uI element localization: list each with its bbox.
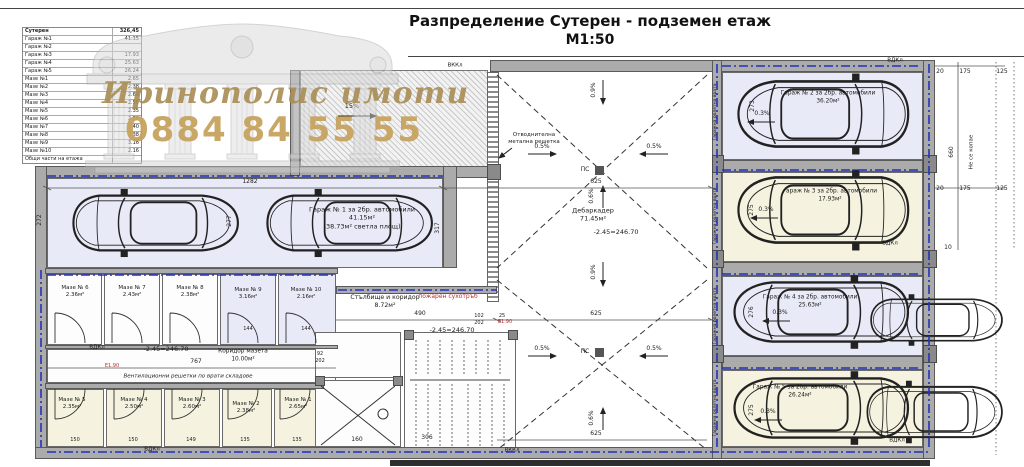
dim: 202 xyxy=(474,320,484,327)
car-top-view-icon xyxy=(871,294,1002,346)
slope-label: 0.3% xyxy=(758,206,773,214)
garage2-label: Гараж № 2 за 2бр. автомобили36.20м² xyxy=(781,90,876,105)
slope-label: 0.9% xyxy=(591,264,597,279)
roller-door-label: Гаражна ролетна врата xyxy=(714,380,719,437)
dim: 625 xyxy=(590,310,601,318)
dim: 20 xyxy=(936,68,944,76)
ps-label: ПС xyxy=(581,166,590,174)
slope-label: 0.9% xyxy=(591,82,597,97)
dim: 175 xyxy=(959,68,970,76)
maze1-label: Мазе № 12.65м² xyxy=(284,397,311,411)
dim: 125 xyxy=(996,185,1007,193)
slope-label: 0.3% xyxy=(760,408,775,416)
slope-label: 0.5% xyxy=(646,345,661,353)
level-mark: -2.45=246.70 xyxy=(429,326,474,334)
slope-label: 0.6% xyxy=(589,410,595,425)
dim: 135 xyxy=(292,437,302,444)
maze9-label: Мазе № 93.16м² xyxy=(234,287,261,301)
vkkl-label: ВККл xyxy=(447,62,462,69)
slope-label: 0.5% xyxy=(534,345,549,353)
dim: 306 xyxy=(421,434,432,442)
dim: 20 xyxy=(936,185,944,193)
dim: 490 xyxy=(414,310,425,318)
maze4-label: Мазе № 42.50м² xyxy=(120,397,147,411)
dim: 149 xyxy=(186,437,196,444)
bottom-section-bar xyxy=(390,460,930,466)
vent-note: Вентилационни решетки по врати складове xyxy=(123,373,252,380)
stair-steps xyxy=(416,340,504,448)
dim: 144 xyxy=(243,326,253,333)
dim: 92 xyxy=(317,351,323,358)
maze7-label: Мазе № 72.43м² xyxy=(118,285,145,299)
maze5-label: Мазе № 52.35м² xyxy=(58,397,85,411)
dim: 150 xyxy=(70,437,80,444)
level-mark: -2.45=246.70 xyxy=(143,345,188,353)
corridor-label: Коридор мазета10.00м² xyxy=(218,348,268,363)
dim: 102 xyxy=(474,313,484,320)
vdkl-label: ВДКл xyxy=(144,446,160,453)
phone-watermark: 0884 84 55 55 xyxy=(125,110,423,150)
dim: 317 xyxy=(435,222,441,233)
dim: 277 xyxy=(227,215,233,226)
roller-door-label: Гаражна ролетна врата xyxy=(714,188,719,245)
maze2-label: Мазе № 22.38м² xyxy=(232,401,259,415)
dim: 125 xyxy=(996,68,1007,76)
vkkl-label: ВККл xyxy=(504,447,519,454)
dim: 25 xyxy=(499,313,505,320)
vdkl-label: ВДКл xyxy=(89,344,105,351)
dim: 135 xyxy=(240,437,250,444)
e-mark: Е1.90 xyxy=(105,363,119,370)
slope-label: 0.5% xyxy=(534,143,549,151)
dim: 273 xyxy=(750,100,756,111)
vdkl-label: ВДКл xyxy=(887,57,903,64)
slope-label: 0.3% xyxy=(754,110,769,118)
dim: 625 xyxy=(590,430,601,438)
dim: 202 xyxy=(315,358,325,365)
vdkl-label: ВДКл xyxy=(889,437,905,444)
dim: 150 xyxy=(128,437,138,444)
ps-shaft-square xyxy=(595,348,604,357)
slope-label: 0.5% xyxy=(646,143,661,151)
drawing-scale: М1:50 xyxy=(408,32,772,48)
ps-label: ПС xyxy=(581,348,590,356)
garage3-label: гараж № 3 за 2бр. автомобили17.93м² xyxy=(783,188,877,203)
slope-label: 0.3% xyxy=(772,309,787,317)
garage5-label: Гараж № 5 за 2бр. автомобили26.24м² xyxy=(753,384,848,399)
maze6-label: Мазе № 62.36м² xyxy=(61,285,88,299)
dim: 1282 xyxy=(242,178,257,186)
dim: 275 xyxy=(749,404,755,415)
dim: 660 xyxy=(949,146,955,157)
dim: 767 xyxy=(190,358,201,366)
dim: 10 xyxy=(944,244,952,252)
garage1-label: Гараж № 1 за 2бр. автомобили41.15м²(38.7… xyxy=(309,205,415,230)
fire-pipe-note: пожарен сухотръб xyxy=(418,293,477,301)
agency-watermark: Иринополис имоти xyxy=(102,76,469,111)
dim: 272 xyxy=(37,214,43,225)
maze3-label: Мазе № 32.60м² xyxy=(178,397,205,411)
dim: 144 xyxy=(301,326,311,333)
dim: 160 xyxy=(351,436,362,444)
e-mark: Е1.90 xyxy=(498,319,512,326)
vdkl-label: ВДКл xyxy=(882,240,898,247)
stairs-label: Стълбище и коридор8.72м² xyxy=(350,294,419,310)
ps-shaft-square xyxy=(595,166,604,175)
boundary-dotted-lines xyxy=(996,62,1014,455)
dim: 175 xyxy=(959,185,970,193)
slope-label: 0.6% xyxy=(589,188,595,203)
dim: 276 xyxy=(749,306,755,317)
maze8-label: Мазе № 82.38м² xyxy=(176,285,203,299)
roller-door-label: Гаражна ролетна врата xyxy=(714,84,719,141)
maze10-label: Мазе № 102.16м² xyxy=(291,287,322,301)
car-top-view-icon xyxy=(867,381,1002,444)
dim: 625 xyxy=(590,178,601,186)
floor-plan-sheet: Разпределение Сутерен - подземен етаж М1… xyxy=(0,0,1024,467)
no-dig-label: Не се копае xyxy=(969,135,975,169)
car-top-view-icon xyxy=(73,189,237,257)
debarkader-label: Дебаркадер71.45м² xyxy=(572,207,614,224)
garage4-label: Гараж № 4 за 2бр. автомобили25.63м² xyxy=(763,294,858,309)
level-mark: -2.45=246.70 xyxy=(593,228,638,236)
dim: 275 xyxy=(749,204,755,215)
roller-door-label: Гаражна ролетна врата xyxy=(714,288,719,345)
page-title: Разпределение Сутерен - подземен етаж xyxy=(408,12,772,30)
